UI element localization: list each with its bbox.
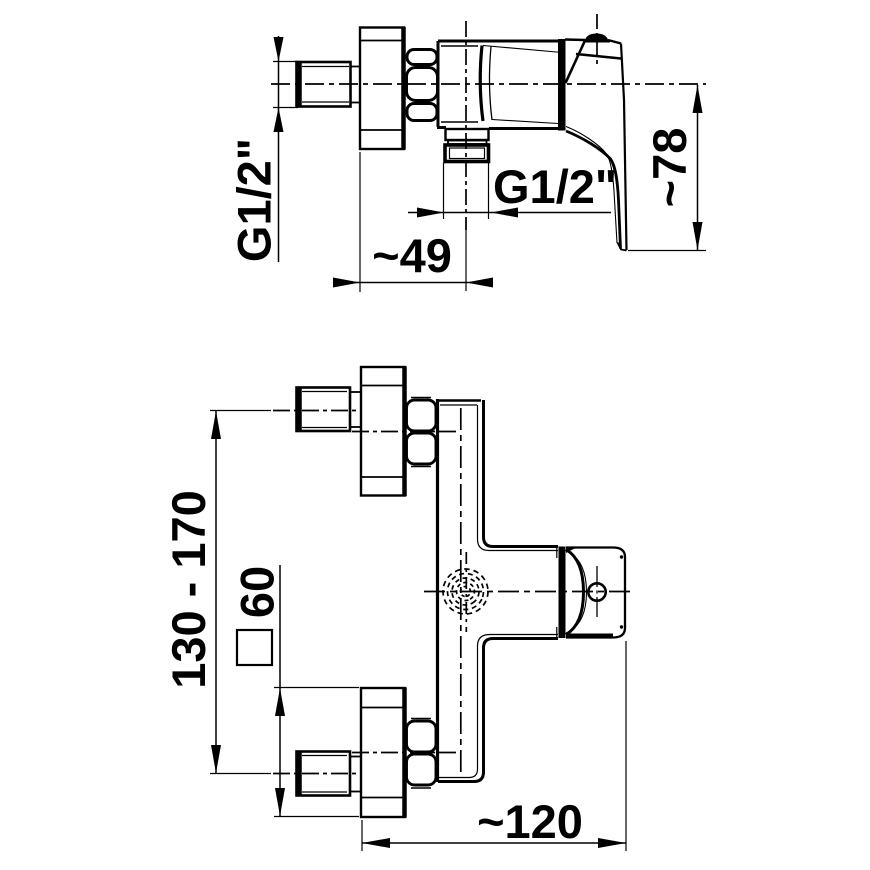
- svg-text:~49: ~49: [372, 229, 452, 282]
- svg-text:130 - 170: 130 - 170: [162, 490, 215, 689]
- svg-text:60: 60: [231, 566, 284, 618]
- svg-text:~78: ~78: [643, 128, 696, 208]
- svg-text:G1/2": G1/2": [493, 160, 617, 213]
- svg-text:~120: ~120: [477, 795, 583, 848]
- svg-text:G1/2": G1/2": [228, 138, 281, 262]
